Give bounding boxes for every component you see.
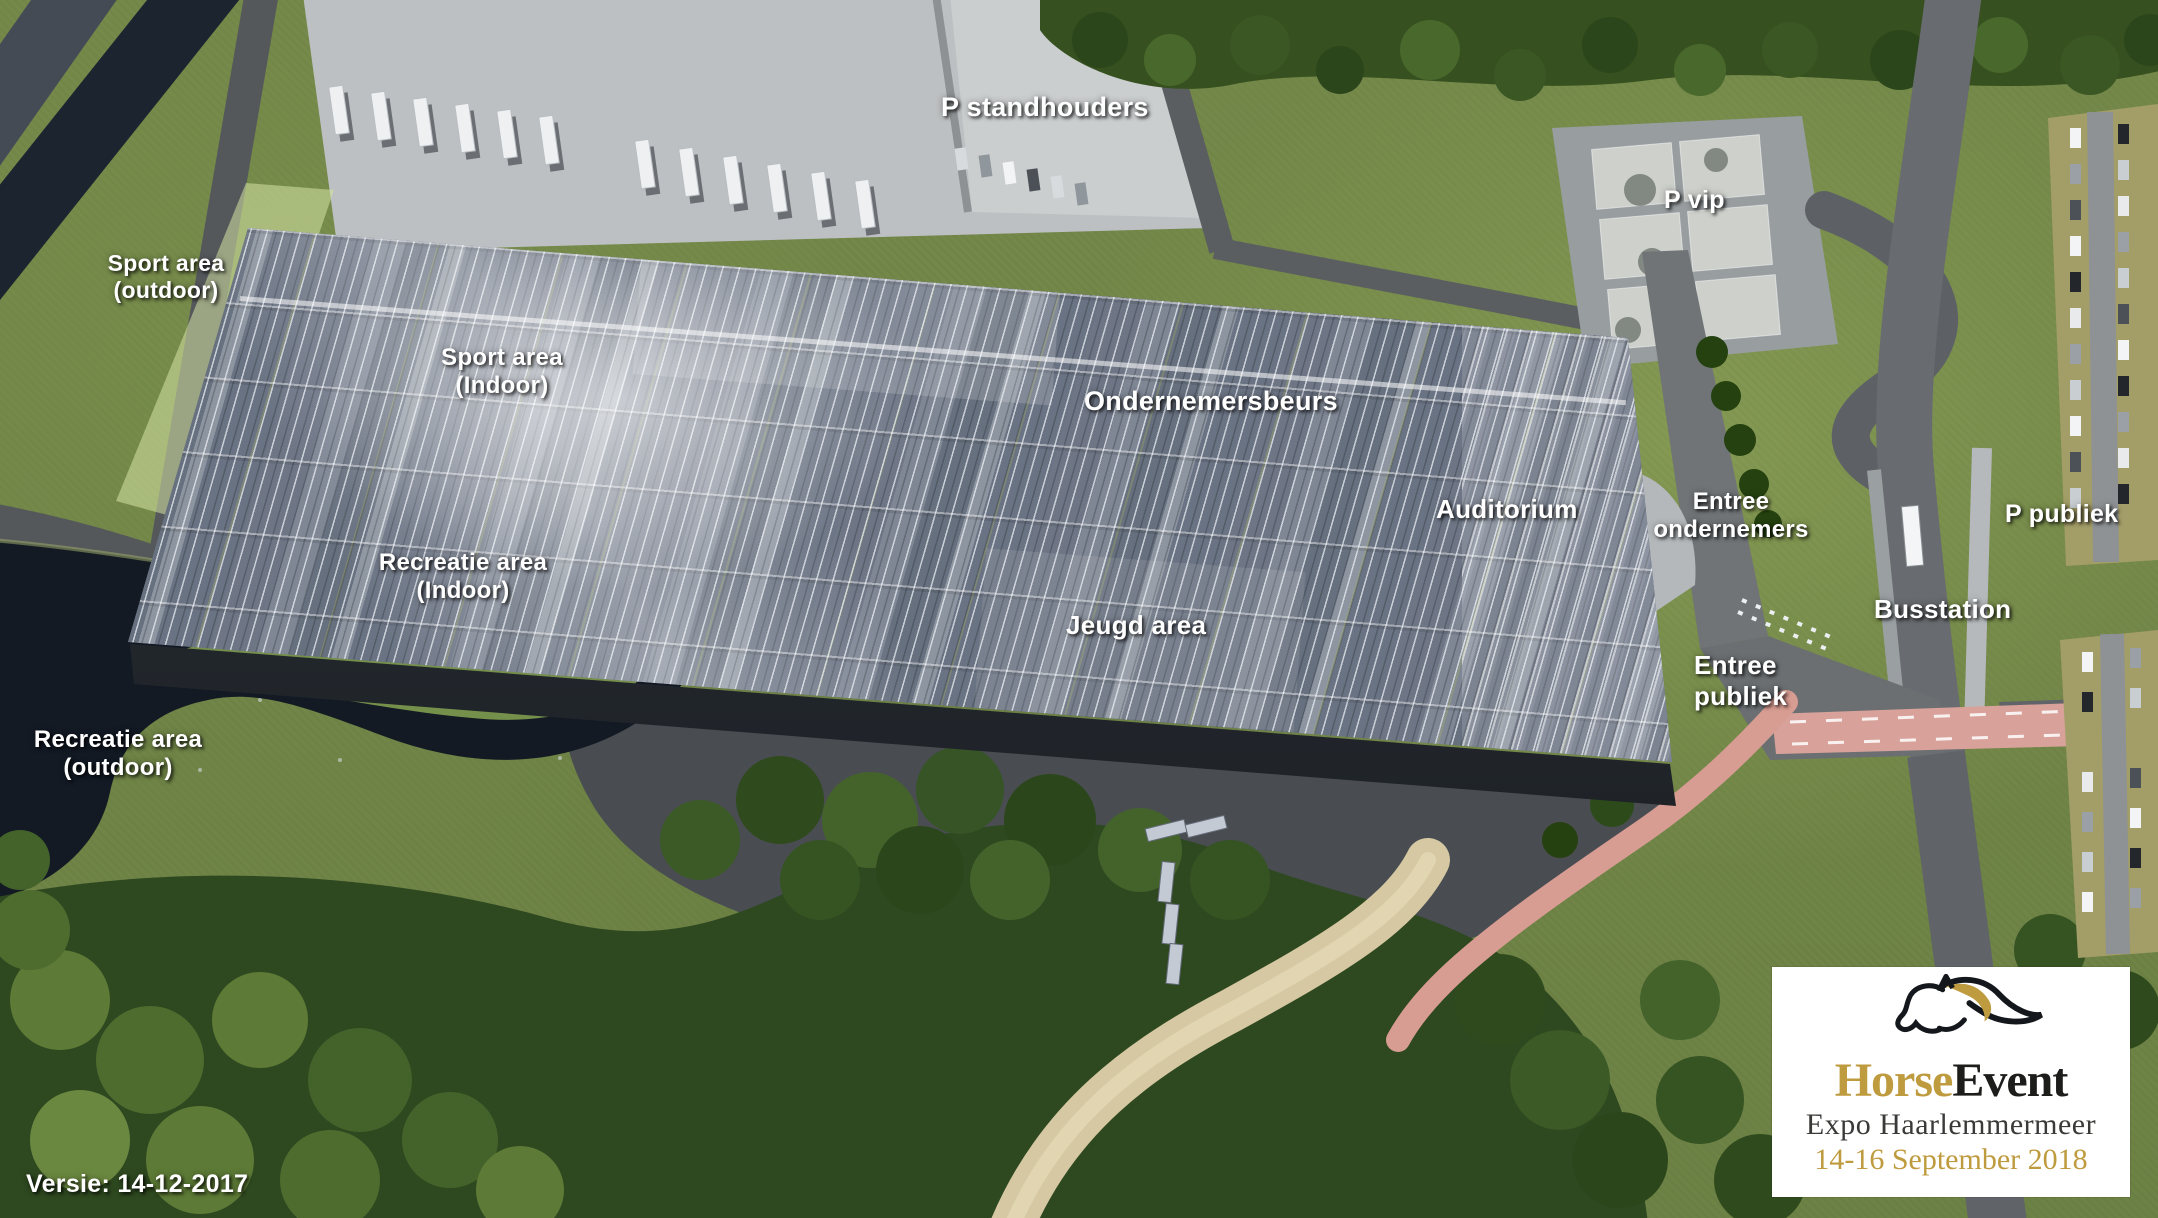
- parking-publiek-south-aisle: [2112, 634, 2118, 954]
- horse-head-icon: [1859, 973, 2043, 1065]
- label-jeugd-area: Jeugd area: [1066, 610, 1206, 641]
- logo-title-event: Event: [1952, 1054, 2067, 1107]
- label-ondernemersbeurs: Ondernemersbeurs: [1084, 386, 1338, 418]
- event-logo-card: HorseEvent Expo Haarlemmermeer 14-16 Sep…: [1772, 967, 2130, 1197]
- label-sport-area-indoor: Sport area (Indoor): [441, 344, 563, 401]
- label-recreatie-area-indoor: Recreatie area (Indoor): [379, 549, 547, 606]
- busstation-road: [1904, 0, 1954, 754]
- label-sport-area-outdoor: Sport area (outdoor): [108, 250, 225, 304]
- label-auditorium: Auditorium: [1436, 494, 1578, 525]
- logo-title: HorseEvent: [1835, 1057, 2068, 1105]
- expo-site-map: Sport area (outdoor) P standhouders Spor…: [0, 0, 2158, 1218]
- logo-subtitle: Expo Haarlemmermeer: [1806, 1108, 2096, 1142]
- label-p-vip: P vip: [1664, 186, 1725, 216]
- label-p-publiek: P publiek: [2005, 500, 2118, 530]
- parking-publiek-north-aisle: [2100, 112, 2106, 562]
- bus-platform-east: [1974, 448, 1982, 730]
- logo-dates: 14-16 September 2018: [1814, 1143, 2087, 1177]
- version-note: Versie: 14-12-2017: [26, 1170, 248, 1200]
- label-entree-ondernemers: Entree ondernemers: [1653, 488, 1808, 545]
- label-entree-publiek: Entree publiek: [1694, 650, 1787, 711]
- label-recreatie-area-outdoor: Recreatie area (outdoor): [34, 726, 202, 783]
- logo-title-horse: Horse: [1835, 1054, 1953, 1107]
- label-busstation: Busstation: [1874, 594, 2011, 625]
- label-p-standhouders: P standhouders: [941, 92, 1149, 124]
